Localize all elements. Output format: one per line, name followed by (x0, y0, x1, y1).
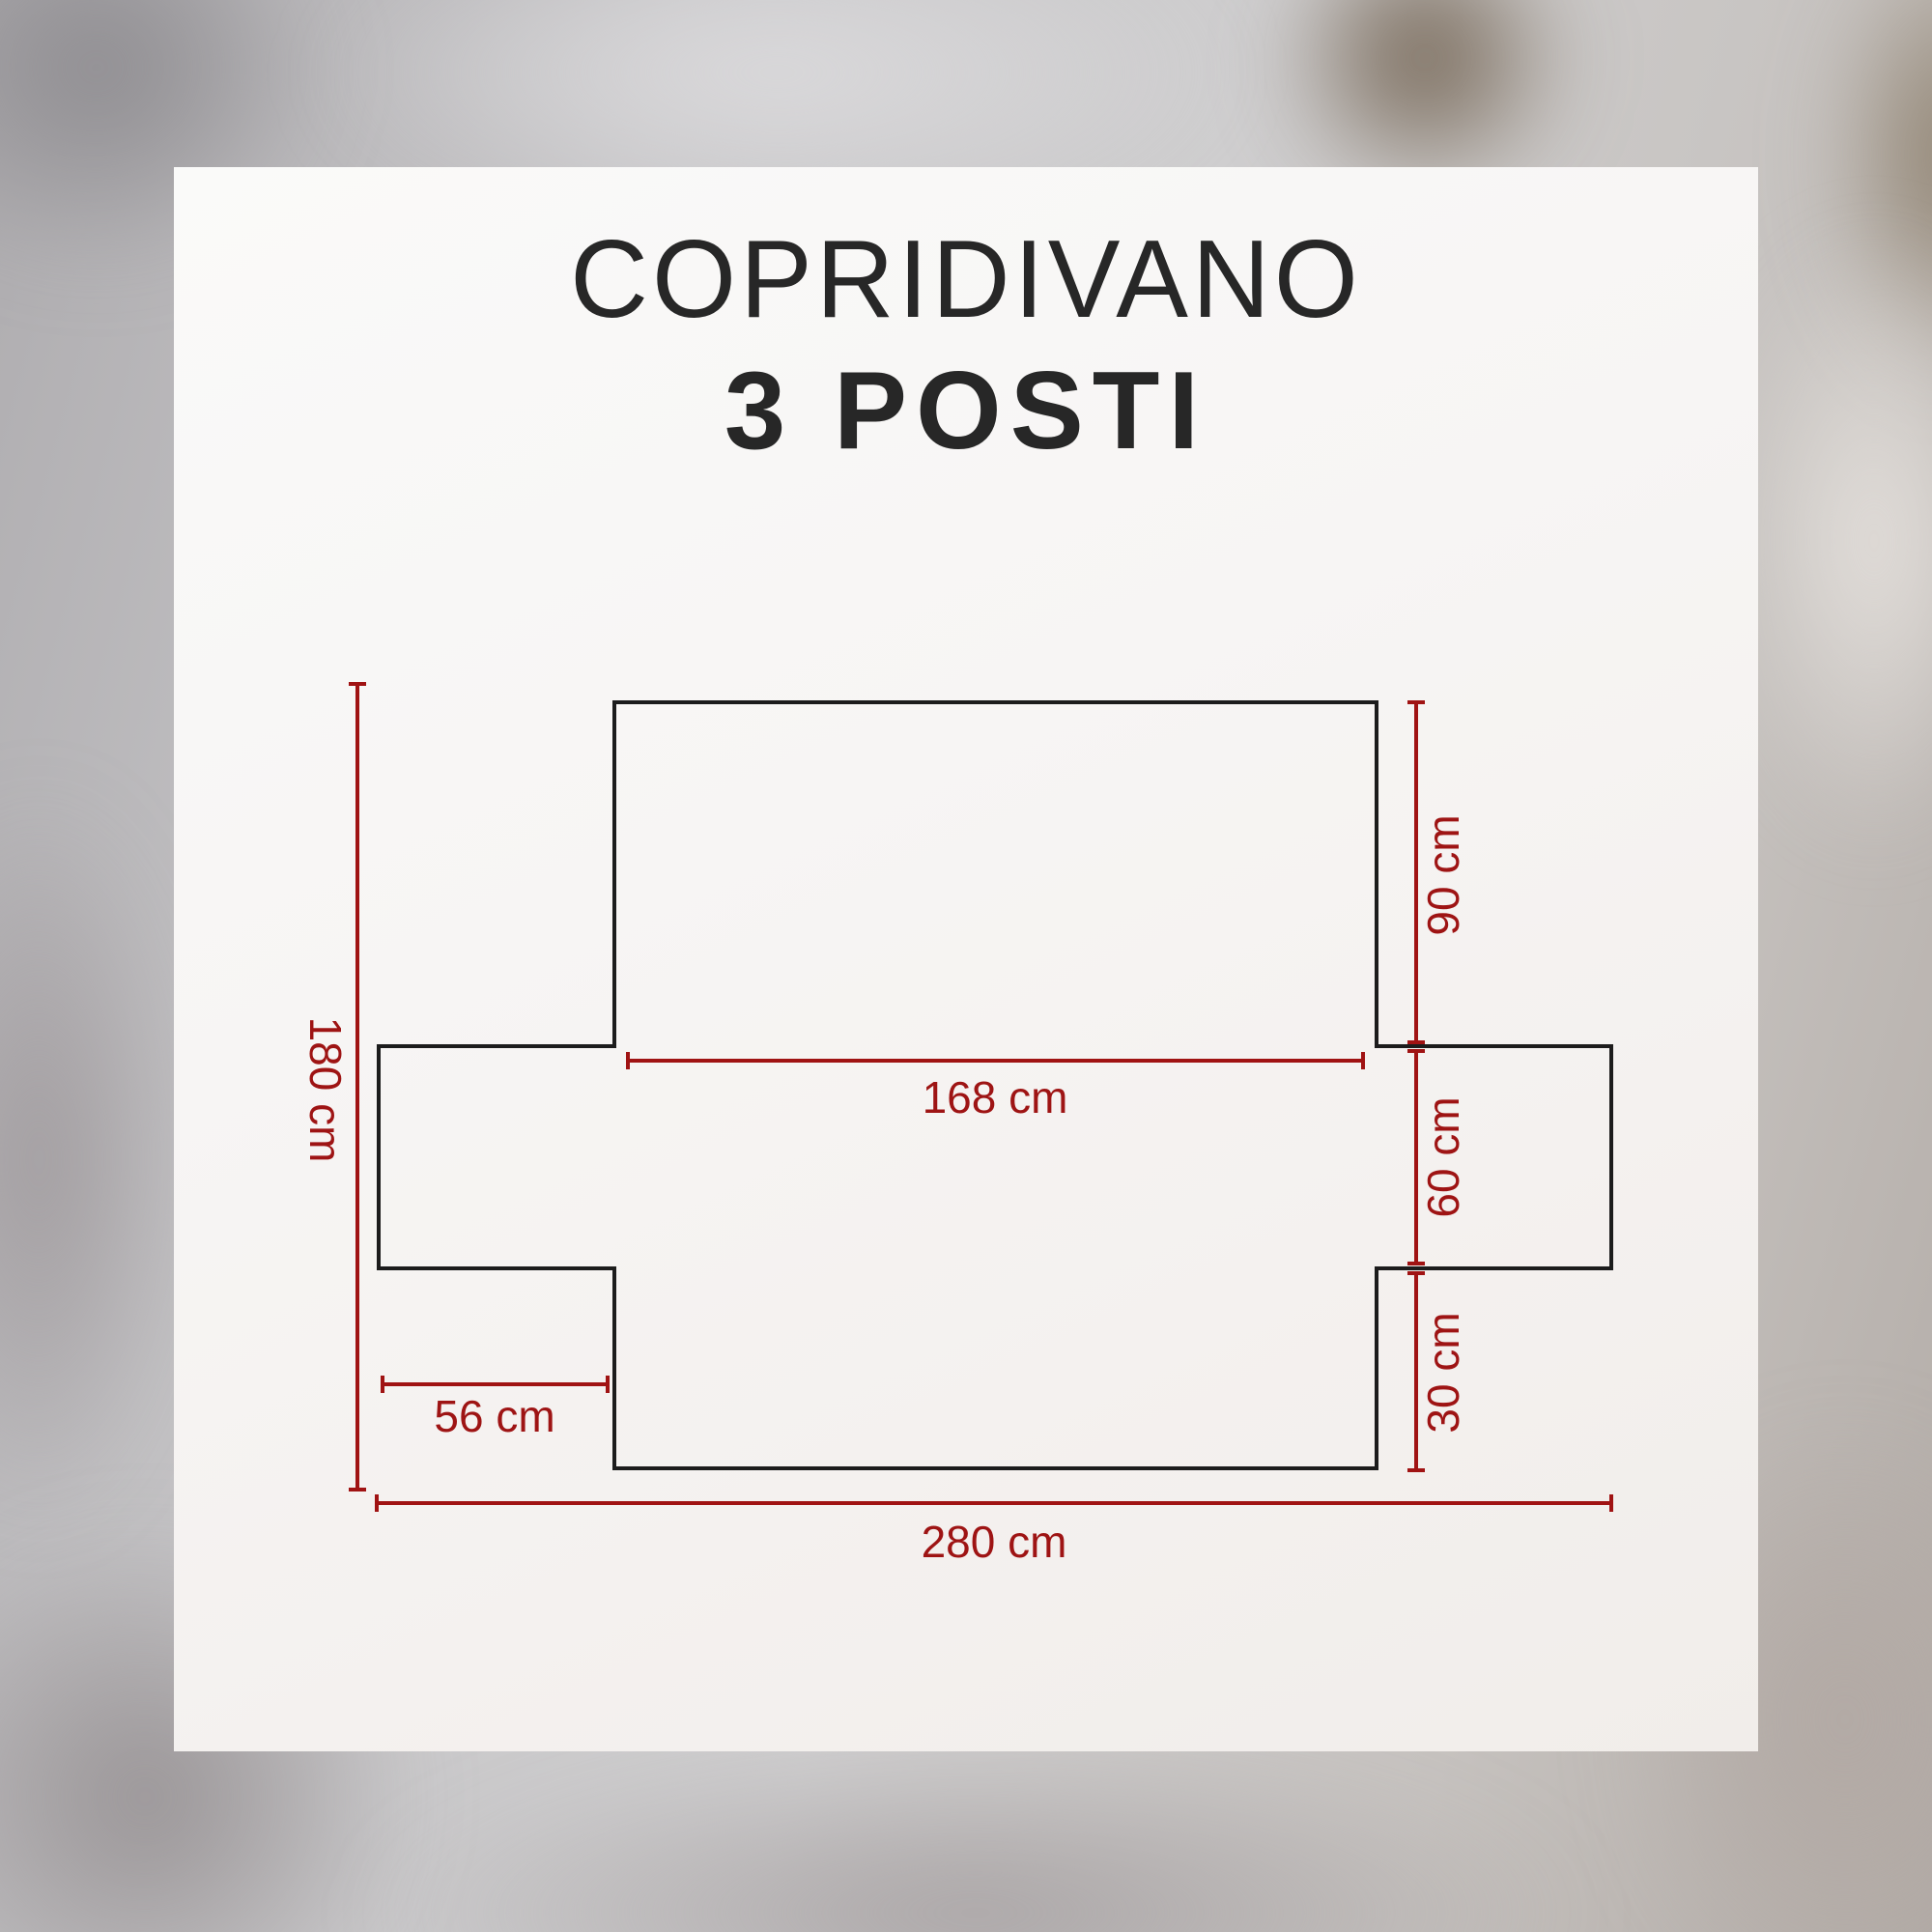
dim-label-side-flap-width: 56 cm (434, 1390, 554, 1442)
dim-label-seat-depth: 60 cm (1417, 1096, 1469, 1217)
dim-label-seat-width: 168 cm (923, 1071, 1068, 1123)
dim-label-back-height: 90 cm (1417, 814, 1469, 935)
dim-label-total-width: 280 cm (922, 1516, 1067, 1568)
dim-line-total-width (377, 1494, 1611, 1512)
dim-label-front-height: 30 cm (1417, 1312, 1469, 1433)
sofa-cover-diagram (0, 0, 1932, 1932)
dim-label-total-height: 180 cm (299, 1017, 352, 1163)
product-infographic: COPRIDIVANO 3 POSTI 180 cm 90 cm 60 cm 3… (0, 0, 1932, 1932)
dim-line-seat-width (628, 1052, 1363, 1069)
